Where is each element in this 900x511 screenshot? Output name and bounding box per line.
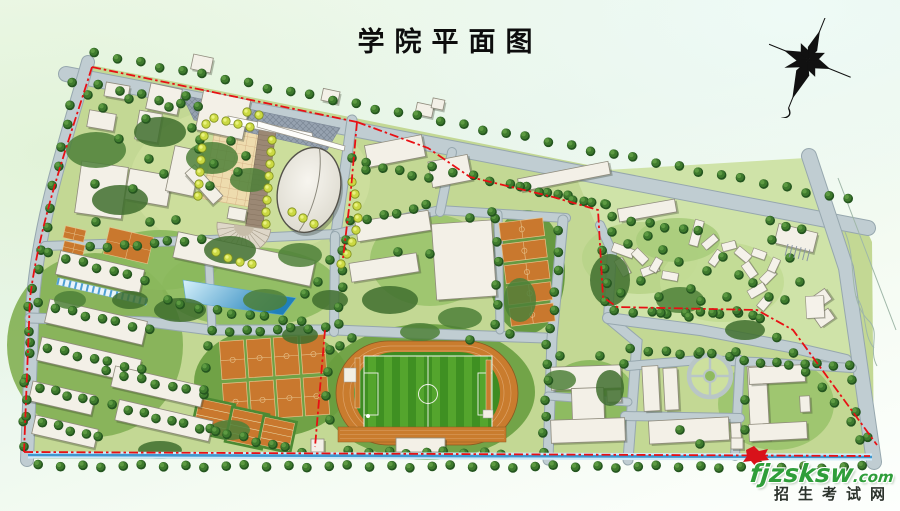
tree	[555, 227, 559, 231]
tree	[39, 419, 43, 423]
tree	[506, 330, 510, 334]
tree-canopy	[596, 370, 624, 406]
tree	[425, 174, 429, 178]
tree	[545, 377, 549, 381]
tree	[749, 279, 753, 283]
tree	[612, 464, 616, 468]
tree	[460, 120, 464, 124]
ornamental-tree	[225, 255, 228, 258]
tree	[521, 132, 525, 136]
tree	[555, 248, 559, 252]
tree	[35, 299, 39, 303]
tree	[146, 325, 150, 329]
tree	[715, 464, 719, 468]
tree-canopy	[112, 291, 148, 309]
tree-canopy	[92, 185, 148, 215]
tree	[62, 255, 66, 259]
tree	[287, 324, 291, 328]
tree	[588, 198, 592, 202]
tree	[155, 97, 159, 101]
tree	[57, 143, 61, 147]
tree	[796, 278, 800, 282]
tree	[35, 265, 39, 269]
tree	[91, 397, 95, 401]
tree	[532, 463, 536, 467]
building	[648, 417, 729, 444]
tree	[301, 290, 305, 294]
ornamental-tree	[300, 215, 303, 218]
tree	[539, 429, 543, 433]
tree	[198, 235, 202, 239]
tree	[151, 239, 155, 243]
tree	[92, 218, 96, 222]
tree	[104, 244, 108, 248]
tree	[329, 97, 333, 101]
tree	[326, 256, 330, 260]
tree	[637, 277, 641, 281]
ornamental-tree	[213, 249, 216, 252]
tree	[856, 436, 860, 440]
tree	[322, 392, 326, 396]
tree	[362, 166, 366, 170]
tree	[449, 169, 453, 173]
tree	[491, 462, 495, 466]
tree	[138, 90, 142, 94]
tree	[55, 421, 59, 425]
ornamental-tree	[247, 124, 250, 127]
ornamental-tree	[264, 197, 267, 200]
tree	[111, 267, 115, 271]
campus-plan-page: 学院平面图 fjzsksw.com 招生考试网	[0, 0, 900, 511]
ornamental-tree	[263, 209, 266, 212]
tree	[74, 353, 78, 357]
tree	[826, 192, 830, 196]
ornamental-tree	[266, 173, 269, 176]
tree	[645, 348, 649, 352]
tree	[195, 305, 199, 309]
tree	[322, 323, 326, 327]
tree	[91, 355, 95, 359]
tree	[644, 232, 648, 236]
ornamental-tree	[211, 115, 214, 118]
tree	[790, 349, 794, 353]
tree	[57, 463, 61, 467]
tree	[572, 463, 576, 467]
tree	[757, 359, 761, 363]
tree	[160, 463, 164, 467]
tree	[663, 347, 667, 351]
tree	[388, 462, 392, 466]
tree	[79, 461, 83, 465]
tree	[36, 384, 40, 388]
tree	[172, 216, 176, 220]
tree	[209, 327, 213, 331]
tree	[141, 277, 145, 281]
tree	[129, 185, 133, 189]
tree	[129, 323, 133, 327]
tree	[685, 313, 689, 317]
jump-strip	[486, 360, 491, 412]
tree	[594, 462, 598, 466]
tree	[587, 147, 591, 151]
tree	[551, 288, 555, 292]
building	[731, 438, 743, 449]
tree	[252, 438, 256, 442]
tree	[423, 201, 427, 205]
tree	[160, 170, 164, 174]
tree-canopy	[400, 323, 440, 341]
ornamental-tree	[249, 261, 252, 264]
tree	[773, 334, 777, 338]
tree	[324, 368, 328, 372]
tree	[103, 367, 107, 371]
tree	[179, 67, 183, 71]
jump-strip	[355, 358, 360, 408]
tree	[336, 342, 340, 346]
tree	[44, 344, 48, 348]
tree	[437, 117, 441, 121]
tree	[555, 267, 559, 271]
tree	[124, 270, 128, 274]
tree	[112, 317, 116, 321]
tree	[138, 461, 142, 465]
tree	[156, 64, 160, 68]
tree	[426, 250, 430, 254]
tree	[348, 334, 352, 338]
tree	[138, 365, 142, 369]
tree	[138, 375, 142, 379]
tree	[647, 219, 651, 223]
tree	[326, 462, 330, 466]
tree	[429, 163, 433, 167]
building	[311, 439, 324, 452]
ornamental-tree	[354, 203, 357, 206]
tree	[241, 461, 245, 465]
tree	[69, 79, 73, 83]
tree	[429, 462, 433, 466]
tree	[627, 345, 631, 349]
tree	[659, 246, 663, 250]
tree	[345, 447, 349, 451]
tree	[544, 360, 548, 364]
tree	[581, 197, 585, 201]
tree	[109, 401, 113, 405]
tree	[257, 328, 261, 332]
tree	[279, 316, 283, 320]
tree	[226, 328, 230, 332]
tree-canopy	[186, 142, 238, 174]
tree	[63, 392, 67, 396]
tree	[348, 154, 352, 158]
tree	[198, 69, 202, 73]
tree	[495, 258, 499, 262]
tree	[617, 289, 621, 293]
tree	[125, 406, 129, 410]
tree	[543, 341, 547, 345]
tree	[466, 214, 470, 218]
tree	[146, 218, 150, 222]
building	[749, 421, 808, 441]
tree	[609, 213, 613, 217]
ornamental-tree	[265, 185, 268, 188]
tree	[601, 297, 605, 301]
watermark-caption: 招生考试网	[750, 487, 894, 503]
tree	[52, 304, 56, 308]
ornamental-tree	[196, 181, 199, 184]
tree	[680, 225, 684, 229]
tree	[682, 309, 686, 313]
tree	[845, 195, 849, 199]
tree	[696, 348, 700, 352]
tree	[353, 99, 357, 103]
tree	[569, 196, 573, 200]
building	[663, 368, 679, 411]
tree	[757, 315, 761, 319]
tree	[61, 347, 65, 351]
tree	[21, 379, 25, 383]
ornamental-tree	[353, 227, 356, 230]
tree	[697, 462, 701, 466]
tree	[214, 306, 218, 310]
tree-canopy	[438, 307, 482, 329]
tree	[423, 449, 427, 453]
tree	[169, 383, 173, 387]
tree	[507, 180, 511, 184]
tree	[247, 311, 251, 315]
tree	[274, 326, 278, 330]
tree	[503, 129, 507, 133]
tree	[240, 433, 244, 437]
tree	[64, 121, 68, 125]
tree	[760, 180, 764, 184]
tree	[245, 79, 249, 83]
tree	[564, 191, 568, 195]
tree	[676, 426, 680, 430]
tree	[363, 159, 367, 163]
tree	[52, 387, 56, 391]
tree	[635, 463, 639, 467]
tree	[610, 150, 614, 154]
tree	[781, 296, 785, 300]
ornamental-tree	[349, 239, 352, 242]
tree	[629, 153, 633, 157]
ornamental-tree	[355, 215, 358, 218]
ornamental-tree	[203, 121, 206, 124]
tree	[67, 427, 71, 431]
tree	[492, 281, 496, 285]
tree	[723, 293, 727, 297]
tree	[344, 461, 348, 465]
ornamental-tree	[201, 133, 204, 136]
tree	[104, 357, 108, 361]
tree	[305, 325, 309, 329]
tree	[732, 348, 736, 352]
tree	[79, 394, 83, 398]
tree	[141, 409, 145, 413]
tree	[488, 208, 492, 212]
tree	[182, 461, 186, 465]
tree	[49, 182, 53, 186]
tree	[303, 464, 307, 468]
tree	[151, 380, 155, 384]
tree	[121, 363, 125, 367]
tree	[830, 362, 834, 366]
tree	[556, 352, 560, 356]
tree	[479, 126, 483, 130]
building	[431, 220, 496, 300]
tree	[381, 211, 385, 215]
tree	[551, 306, 555, 310]
tree	[228, 310, 232, 314]
tree	[596, 352, 600, 356]
tree	[394, 248, 398, 252]
tree	[207, 425, 211, 429]
tree	[393, 210, 397, 214]
tree	[550, 461, 554, 465]
tree	[120, 372, 124, 376]
tree	[697, 297, 701, 301]
tree	[298, 317, 302, 321]
ornamental-tree	[268, 149, 271, 152]
tree	[335, 320, 339, 324]
tree	[470, 171, 474, 175]
tree	[152, 415, 156, 419]
tree	[540, 449, 544, 453]
tree	[735, 271, 739, 275]
tree	[196, 425, 200, 429]
tree	[80, 258, 84, 262]
ornamental-tree	[235, 121, 238, 124]
tree	[719, 253, 723, 257]
tree	[620, 360, 624, 364]
tree	[99, 315, 103, 319]
building	[551, 418, 626, 444]
tree	[852, 408, 856, 412]
tree	[182, 92, 186, 96]
tree	[675, 258, 679, 262]
sand-pit	[344, 368, 356, 382]
tree	[447, 461, 451, 465]
tree	[82, 313, 86, 317]
tree	[624, 240, 628, 244]
road	[334, 236, 335, 332]
tree	[741, 396, 745, 400]
tree	[768, 236, 772, 240]
tree	[115, 135, 119, 139]
tree	[200, 464, 204, 468]
tree	[676, 162, 680, 166]
tree	[134, 242, 138, 246]
tree	[121, 241, 125, 245]
tree	[223, 430, 227, 434]
tree	[395, 108, 399, 112]
tree	[798, 225, 802, 229]
tree	[95, 81, 99, 85]
tree	[783, 183, 787, 187]
tree	[183, 385, 187, 389]
tree	[195, 103, 199, 107]
tree	[785, 361, 789, 365]
tree	[339, 247, 343, 251]
tree	[125, 95, 129, 99]
tree-canopy	[243, 289, 287, 311]
tree	[782, 223, 786, 227]
tree	[335, 303, 339, 307]
tree	[440, 447, 444, 451]
tree	[142, 115, 146, 119]
tree	[652, 159, 656, 163]
tree	[69, 307, 73, 311]
tree	[326, 346, 330, 350]
tree	[718, 171, 722, 175]
tree	[661, 224, 665, 228]
sand-pit	[483, 410, 493, 418]
ornamental-tree	[199, 145, 202, 148]
tree	[414, 111, 418, 115]
tree	[206, 182, 210, 186]
tree	[396, 166, 400, 170]
tree	[83, 430, 87, 434]
tree	[326, 416, 330, 420]
tree	[91, 180, 95, 184]
tree	[244, 326, 248, 330]
tree-canopy	[278, 243, 322, 267]
tree	[120, 462, 124, 466]
tree	[168, 417, 172, 421]
tree	[555, 191, 559, 195]
tree	[314, 278, 318, 282]
tree	[66, 101, 70, 105]
tree	[180, 419, 184, 423]
tree	[285, 462, 289, 466]
tree	[466, 336, 470, 340]
ornamental-tree	[269, 137, 272, 140]
tree	[165, 103, 169, 107]
building	[431, 98, 445, 110]
tree	[242, 152, 246, 156]
tree	[339, 283, 343, 287]
tree	[655, 293, 659, 297]
tree	[212, 427, 216, 431]
tree	[371, 106, 375, 110]
tree	[544, 189, 548, 193]
building	[800, 396, 811, 413]
tree	[603, 279, 607, 283]
ornamental-tree	[267, 161, 270, 164]
tree	[410, 205, 414, 209]
tree	[116, 87, 120, 91]
tree	[773, 358, 777, 362]
tree	[801, 360, 805, 364]
ornamental-tree	[352, 191, 355, 194]
tree	[25, 303, 29, 307]
ornamental-tree	[344, 251, 347, 254]
tree	[846, 361, 850, 365]
tree	[847, 418, 851, 422]
tree	[819, 383, 823, 387]
tree	[406, 464, 410, 468]
stadium-track	[336, 341, 518, 445]
tree	[181, 238, 185, 242]
tree	[687, 285, 691, 289]
tree	[222, 76, 226, 80]
tree	[164, 237, 168, 241]
tree	[765, 293, 769, 297]
tree	[97, 463, 101, 467]
tree	[802, 189, 806, 193]
watermark: fjzsksw.com 招生考试网	[750, 461, 894, 503]
tree	[35, 461, 39, 465]
